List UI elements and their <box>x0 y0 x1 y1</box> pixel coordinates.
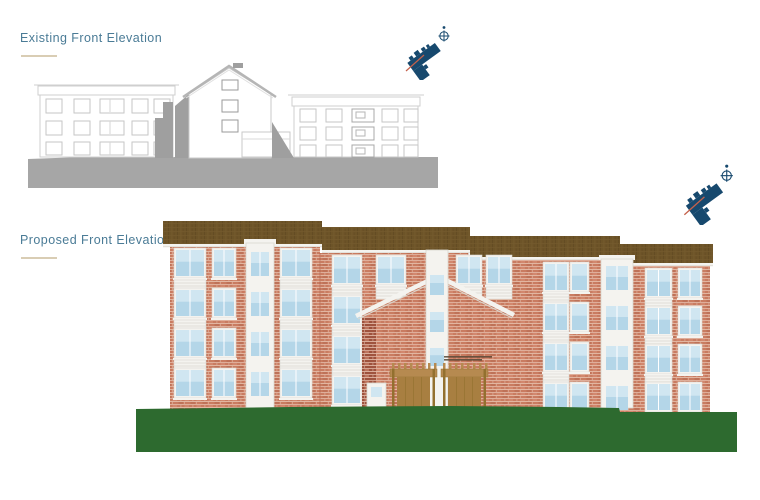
window <box>326 109 342 122</box>
shaded-wall <box>163 102 173 118</box>
shape <box>464 377 465 408</box>
proposed-ground-grass <box>136 406 737 452</box>
pergola-post <box>443 369 446 408</box>
window <box>404 127 418 140</box>
parapet <box>38 86 175 95</box>
shaded-wall <box>272 122 294 158</box>
shape <box>572 384 587 396</box>
window <box>300 127 316 140</box>
north-symbol-icon <box>721 165 733 182</box>
window <box>74 99 90 113</box>
key-plan-footprint <box>405 39 449 80</box>
rafter <box>473 363 476 369</box>
rafter <box>434 363 437 369</box>
entrance-pergola <box>390 363 437 408</box>
entrance-pergola <box>441 363 488 408</box>
roof-section <box>322 227 470 250</box>
window <box>100 121 124 135</box>
window <box>404 109 418 122</box>
rafter <box>398 363 401 369</box>
shape <box>443 26 446 29</box>
window-sill <box>569 332 590 334</box>
existing-elevation-title: Existing Front Elevation <box>20 31 162 45</box>
window <box>100 99 124 113</box>
window <box>300 109 316 122</box>
proposed-elevation-drawing <box>130 215 745 460</box>
elevation-sheet: Existing Front Elevation Proposed Front … <box>0 0 760 500</box>
rafter <box>422 363 425 369</box>
shape <box>371 387 382 397</box>
shaded-wall <box>175 94 189 158</box>
shape <box>572 264 587 276</box>
shape <box>430 275 444 283</box>
existing-right-block <box>288 95 424 157</box>
north-symbol-icon <box>439 26 450 41</box>
window-sill <box>569 292 590 294</box>
existing-central-gable <box>175 63 294 158</box>
shape <box>444 356 492 358</box>
rafter <box>449 363 452 369</box>
window-sill <box>211 358 237 360</box>
window <box>222 120 238 132</box>
window <box>132 121 148 135</box>
window <box>46 99 62 113</box>
window-sill <box>569 372 590 374</box>
window <box>382 127 398 140</box>
shape <box>356 130 365 136</box>
shape <box>444 359 482 361</box>
window-sill <box>677 298 703 300</box>
shape <box>572 344 587 356</box>
window <box>300 145 316 157</box>
window <box>382 109 398 122</box>
existing-ground <box>28 157 438 188</box>
roof-section <box>163 221 322 244</box>
rafter <box>479 363 482 369</box>
rafter <box>443 363 446 369</box>
pergola-post <box>392 369 395 408</box>
shape <box>413 377 414 408</box>
window <box>326 145 342 157</box>
rafter <box>461 363 464 369</box>
window-sill <box>211 398 237 400</box>
rafter <box>392 363 395 369</box>
window <box>74 142 90 155</box>
rafter <box>416 363 419 369</box>
pergola-beam <box>441 369 488 377</box>
rafter <box>428 363 431 369</box>
parapet <box>292 97 420 106</box>
window-sill <box>211 318 237 320</box>
window <box>326 127 342 140</box>
shape <box>572 304 587 316</box>
rafter <box>485 363 488 369</box>
window <box>132 99 148 113</box>
roof-section <box>470 236 620 257</box>
proposed-title-underline <box>21 257 57 259</box>
rafter <box>467 363 470 369</box>
shape <box>456 377 457 408</box>
existing-elevation-drawing <box>28 60 440 190</box>
window <box>46 121 62 135</box>
existing-title-underline <box>21 55 57 57</box>
window-sill <box>677 336 703 338</box>
window <box>222 80 238 90</box>
pergola-beam <box>390 369 437 377</box>
rafter <box>455 363 458 369</box>
window-sill <box>173 398 207 400</box>
entrance-door <box>367 383 386 408</box>
window-sill <box>677 374 703 376</box>
shaded-wall <box>155 118 173 158</box>
window <box>404 145 418 157</box>
block-joint <box>320 253 321 408</box>
window <box>382 145 398 157</box>
key-plan-icon <box>403 24 455 80</box>
shape <box>356 148 365 154</box>
rafter <box>404 363 407 369</box>
rafter <box>410 363 413 369</box>
window-bay <box>599 255 635 410</box>
window <box>132 142 148 155</box>
shape <box>405 377 406 408</box>
window <box>100 142 124 155</box>
shape <box>430 348 444 355</box>
shape <box>356 112 365 118</box>
shape <box>472 377 473 408</box>
pergola-post <box>484 369 487 408</box>
ridge-cap <box>233 63 243 68</box>
pergola-post <box>433 369 436 408</box>
window-bay <box>244 239 276 408</box>
window <box>222 100 238 112</box>
roof-section <box>620 244 713 263</box>
shape <box>725 165 728 168</box>
window-sill <box>279 398 313 400</box>
window <box>46 142 62 155</box>
window <box>74 121 90 135</box>
shape <box>421 377 422 408</box>
window-sill <box>211 278 237 280</box>
shape <box>430 312 444 320</box>
